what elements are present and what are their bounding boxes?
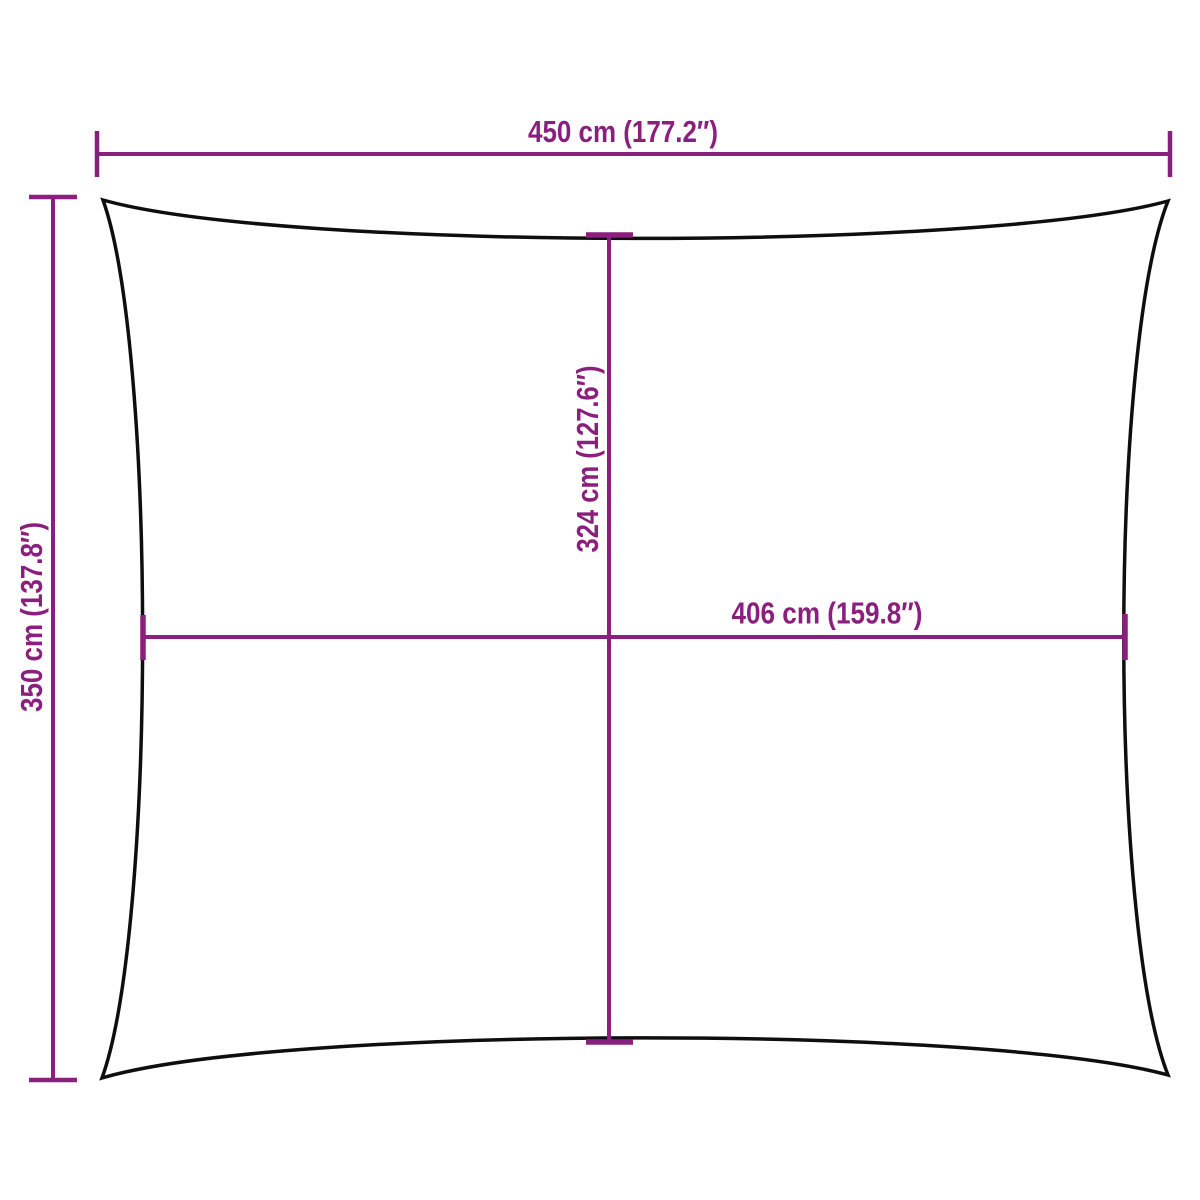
svg-text:406 cm (159.8″): 406 cm (159.8″) xyxy=(732,596,923,631)
svg-text:324 cm (127.6″): 324 cm (127.6″) xyxy=(570,366,605,553)
svg-text:450 cm (177.2″): 450 cm (177.2″) xyxy=(528,114,718,149)
svg-text:350 cm (137.8″): 350 cm (137.8″) xyxy=(14,522,49,712)
